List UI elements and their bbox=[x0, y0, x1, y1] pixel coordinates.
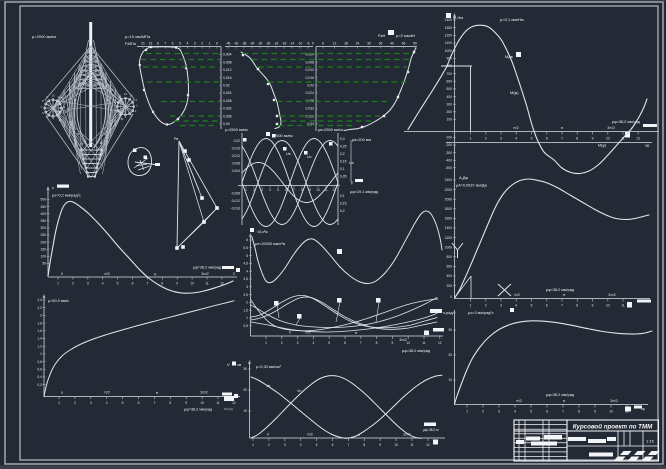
svg-text:7: 7 bbox=[347, 443, 349, 447]
svg-text:·10,с²м: ·10,с²м bbox=[256, 230, 268, 234]
svg-text:0,2: 0,2 bbox=[340, 209, 345, 213]
svg-text:1,5: 1,5 bbox=[243, 308, 248, 312]
svg-text:μφ=38,2 мм/рад: μφ=38,2 мм/рад bbox=[546, 393, 575, 397]
svg-text:0,1: 0,1 bbox=[340, 167, 345, 171]
svg-text:9: 9 bbox=[592, 137, 594, 141]
svg-text:11: 11 bbox=[130, 94, 133, 98]
svg-text:10: 10 bbox=[243, 409, 247, 413]
svg-text:1: 1 bbox=[58, 401, 60, 405]
svg-text:3π/2: 3π/2 bbox=[399, 338, 406, 342]
svg-text:μ=0,1 мм/Нм: μ=0,1 мм/Нм bbox=[500, 17, 524, 22]
svg-text:500: 500 bbox=[446, 87, 452, 91]
svg-text:5: 5 bbox=[277, 188, 279, 192]
svg-text:-0,012: -0,012 bbox=[231, 199, 241, 203]
svg-text:30: 30 bbox=[367, 42, 371, 46]
svg-text:0,032: 0,032 bbox=[223, 107, 232, 111]
svg-text:7: 7 bbox=[561, 304, 563, 308]
svg-text:1200: 1200 bbox=[445, 236, 453, 240]
svg-text:400: 400 bbox=[446, 95, 452, 99]
svg-text:0,004: 0,004 bbox=[223, 53, 232, 57]
svg-text:2: 2 bbox=[40, 314, 42, 318]
svg-text:0,012: 0,012 bbox=[306, 68, 315, 72]
svg-text:1,6: 1,6 bbox=[37, 329, 42, 333]
svg-text:0: 0 bbox=[450, 295, 452, 299]
svg-text:0,4: 0,4 bbox=[37, 375, 42, 379]
svg-text:2,4: 2,4 bbox=[37, 298, 42, 302]
svg-text:Uс: Uс bbox=[307, 155, 312, 159]
svg-text:0,008: 0,008 bbox=[306, 60, 315, 64]
svg-text:10: 10 bbox=[448, 378, 452, 382]
svg-text:1: 1 bbox=[40, 352, 42, 356]
svg-text:11: 11 bbox=[216, 401, 220, 405]
svg-text:0,5: 0,5 bbox=[243, 324, 248, 328]
svg-text:μ=2000 мм/м: μ=2000 мм/м bbox=[32, 34, 56, 39]
svg-text:10: 10 bbox=[606, 137, 610, 141]
svg-text:1: 1 bbox=[265, 341, 267, 345]
svg-text:19: 19 bbox=[149, 42, 153, 46]
svg-text:0,004: 0,004 bbox=[232, 169, 240, 173]
svg-text:0,008: 0,008 bbox=[232, 162, 240, 166]
svg-text:2200: 2200 bbox=[445, 188, 453, 192]
svg-text:0,2: 0,2 bbox=[340, 152, 345, 156]
svg-text:2: 2 bbox=[74, 401, 76, 405]
svg-text:100: 100 bbox=[40, 255, 46, 259]
svg-text:μφ=19,1 мм/рад: μφ=19,1 мм/рад bbox=[350, 190, 379, 194]
svg-text:6: 6 bbox=[132, 282, 134, 286]
svg-text:7: 7 bbox=[561, 137, 563, 141]
svg-text:6: 6 bbox=[246, 238, 248, 242]
svg-text:3π/2: 3π/2 bbox=[610, 399, 617, 403]
svg-text:μ=0,33 мм/см³: μ=0,33 мм/см³ bbox=[256, 365, 282, 369]
svg-text:-14: -14 bbox=[290, 42, 295, 46]
svg-text:2: 2 bbox=[72, 282, 74, 286]
svg-text:0: 0 bbox=[267, 433, 269, 437]
svg-text:11: 11 bbox=[205, 282, 209, 286]
svg-text:0: 0 bbox=[61, 391, 63, 395]
svg-text:11: 11 bbox=[422, 341, 426, 345]
svg-text:300: 300 bbox=[446, 102, 452, 106]
svg-text:3: 3 bbox=[500, 304, 502, 308]
svg-text:21: 21 bbox=[141, 42, 145, 46]
svg-text:50: 50 bbox=[42, 262, 46, 266]
svg-text:0,024: 0,024 bbox=[306, 91, 315, 95]
svg-text:-18: -18 bbox=[282, 42, 287, 46]
svg-text:3: 3 bbox=[498, 410, 500, 414]
svg-text:μ: μ bbox=[351, 181, 353, 185]
svg-text:10: 10 bbox=[606, 304, 610, 308]
svg-text:-42: -42 bbox=[234, 42, 239, 46]
svg-text:-0,008: -0,008 bbox=[231, 192, 241, 196]
svg-text:6: 6 bbox=[546, 410, 548, 414]
svg-text:м/рад: м/рад bbox=[224, 407, 233, 411]
svg-text:μφ=38,2 мм/рад: μφ=38,2 мм/рад bbox=[402, 349, 431, 353]
svg-text:4: 4 bbox=[515, 304, 517, 308]
svg-text:12: 12 bbox=[426, 443, 430, 447]
svg-text:8: 8 bbox=[363, 443, 365, 447]
svg-text:5: 5 bbox=[179, 42, 181, 46]
svg-text:0,15: 0,15 bbox=[340, 160, 347, 164]
svg-text:0,032: 0,032 bbox=[306, 107, 315, 111]
svg-text:6: 6 bbox=[546, 304, 548, 308]
svg-text:9: 9 bbox=[391, 341, 393, 345]
svg-text:1,4: 1,4 bbox=[37, 337, 42, 341]
svg-text:10: 10 bbox=[200, 401, 204, 405]
svg-text:8: 8 bbox=[578, 410, 580, 414]
svg-text:250: 250 bbox=[40, 233, 46, 237]
svg-text:12: 12 bbox=[333, 42, 337, 46]
svg-text:-200: -200 bbox=[445, 143, 452, 147]
svg-text:50: 50 bbox=[413, 42, 417, 46]
svg-text:9: 9 bbox=[594, 410, 596, 414]
svg-text:μв=2500 мм/м: μв=2500 мм/м bbox=[318, 128, 343, 132]
svg-text:2000: 2000 bbox=[445, 197, 453, 201]
svg-text:5: 5 bbox=[531, 304, 533, 308]
svg-text:5: 5 bbox=[122, 401, 124, 405]
svg-text:2: 2 bbox=[485, 304, 487, 308]
svg-text:12: 12 bbox=[134, 98, 138, 102]
svg-text:0,2: 0,2 bbox=[37, 383, 42, 387]
svg-text:1,2: 1,2 bbox=[37, 344, 42, 348]
svg-text:π/2: π/2 bbox=[514, 293, 519, 297]
svg-text:0,02: 0,02 bbox=[234, 139, 241, 143]
svg-text:1: 1 bbox=[470, 304, 472, 308]
svg-text:π/2: π/2 bbox=[307, 433, 312, 437]
svg-text:12: 12 bbox=[232, 401, 236, 405]
svg-text:5: 5 bbox=[530, 410, 532, 414]
svg-text:0,024: 0,024 bbox=[223, 91, 232, 95]
svg-text:200: 200 bbox=[40, 240, 46, 244]
svg-text:600: 600 bbox=[446, 80, 452, 84]
svg-text:-400: -400 bbox=[445, 158, 452, 162]
svg-text:1: 1 bbox=[466, 410, 468, 414]
svg-text:5: 5 bbox=[246, 254, 248, 258]
svg-text:3: 3 bbox=[500, 137, 502, 141]
svg-text:1200: 1200 bbox=[445, 34, 453, 38]
svg-text:3: 3 bbox=[246, 285, 248, 289]
svg-text:3: 3 bbox=[87, 282, 89, 286]
svg-text:350: 350 bbox=[40, 219, 46, 223]
svg-text:0,016: 0,016 bbox=[232, 147, 240, 151]
svg-text:450: 450 bbox=[40, 205, 46, 209]
svg-text:0,3: 0,3 bbox=[340, 137, 345, 141]
svg-text:0,02: 0,02 bbox=[307, 84, 314, 88]
svg-text:5: 5 bbox=[328, 341, 330, 345]
svg-text:5: 5 bbox=[531, 137, 533, 141]
svg-text:3π/2: 3π/2 bbox=[608, 293, 615, 297]
svg-text:-500: -500 bbox=[445, 166, 452, 170]
svg-text:4: 4 bbox=[106, 401, 108, 405]
svg-text:4: 4 bbox=[186, 42, 188, 46]
svg-text:2: 2 bbox=[268, 443, 270, 447]
svg-text:8: 8 bbox=[576, 137, 578, 141]
svg-text:400: 400 bbox=[40, 212, 46, 216]
svg-text:Р,МПа: Р,МПа bbox=[125, 42, 137, 46]
svg-text:8: 8 bbox=[161, 282, 163, 286]
svg-text:3π/2: 3π/2 bbox=[201, 272, 208, 276]
svg-text:6: 6 bbox=[172, 42, 174, 46]
svg-text:0,1: 0,1 bbox=[340, 194, 345, 198]
svg-text:7: 7 bbox=[562, 410, 564, 414]
svg-text:24: 24 bbox=[356, 42, 360, 46]
svg-text:0,04: 0,04 bbox=[223, 122, 230, 126]
svg-text:V: V bbox=[227, 362, 230, 367]
svg-text:4: 4 bbox=[515, 137, 517, 141]
svg-text:Uв: Uв bbox=[286, 152, 291, 156]
svg-text:500: 500 bbox=[40, 198, 46, 202]
svg-text:9: 9 bbox=[379, 443, 381, 447]
svg-text:μ=2 мм/кН: μ=2 мм/кН bbox=[396, 33, 415, 38]
svg-text:0,05: 0,05 bbox=[340, 175, 347, 179]
svg-text:4: 4 bbox=[514, 410, 516, 414]
svg-text:-6: -6 bbox=[307, 42, 310, 46]
svg-text:6: 6 bbox=[322, 42, 324, 46]
svg-text:2,2: 2,2 bbox=[37, 306, 42, 310]
svg-text:800: 800 bbox=[446, 255, 452, 259]
svg-text:-0,016: -0,016 bbox=[231, 207, 241, 211]
svg-text:μ=10 мм/МПа: μ=10 мм/МПа bbox=[125, 34, 151, 39]
svg-text:1: 1 bbox=[252, 443, 254, 447]
svg-text:2: 2 bbox=[246, 301, 248, 305]
svg-text:300: 300 bbox=[40, 226, 46, 230]
svg-text:7: 7 bbox=[153, 401, 155, 405]
svg-text:5: 5 bbox=[316, 443, 318, 447]
svg-text:3π/2: 3π/2 bbox=[607, 126, 614, 130]
svg-text:8: 8 bbox=[576, 304, 578, 308]
svg-text:А,Дж: А,Дж bbox=[459, 175, 468, 180]
svg-text:4: 4 bbox=[102, 282, 104, 286]
svg-text:2: 2 bbox=[482, 410, 484, 414]
svg-text:400: 400 bbox=[446, 274, 452, 278]
svg-text:1,8: 1,8 bbox=[37, 321, 42, 325]
svg-text:12: 12 bbox=[438, 341, 442, 345]
svg-text:0,012: 0,012 bbox=[223, 68, 232, 72]
svg-text:20: 20 bbox=[448, 353, 452, 357]
svg-text:5: 5 bbox=[117, 282, 119, 286]
svg-text:11: 11 bbox=[57, 95, 60, 99]
svg-text:0,028: 0,028 bbox=[223, 99, 232, 103]
svg-text:π/2: π/2 bbox=[104, 272, 109, 276]
svg-text:0,6: 0,6 bbox=[37, 368, 42, 372]
svg-text:-34: -34 bbox=[250, 42, 255, 46]
svg-text:6: 6 bbox=[546, 137, 548, 141]
svg-text:30: 30 bbox=[243, 367, 247, 371]
svg-text:1400: 1400 bbox=[445, 18, 453, 22]
svg-text:7: 7 bbox=[146, 282, 148, 286]
svg-text:0,02: 0,02 bbox=[223, 84, 230, 88]
svg-text:-26: -26 bbox=[266, 42, 271, 46]
svg-text:1: 1 bbox=[246, 316, 248, 320]
svg-text:18: 18 bbox=[344, 42, 348, 46]
svg-text:3: 3 bbox=[284, 443, 286, 447]
svg-text:Рв: Рв bbox=[174, 137, 178, 141]
svg-text:0,036: 0,036 bbox=[223, 114, 232, 118]
svg-text:30: 30 bbox=[448, 328, 452, 332]
svg-text:7: 7 bbox=[360, 341, 362, 345]
svg-text:0,016: 0,016 bbox=[306, 76, 315, 80]
svg-text:0: 0 bbox=[312, 42, 314, 46]
svg-text:10: 10 bbox=[190, 282, 194, 286]
svg-text:200: 200 bbox=[446, 110, 452, 114]
svg-text:0,016: 0,016 bbox=[223, 76, 232, 80]
svg-text:8: 8 bbox=[157, 42, 159, 46]
svg-text:М(φ): М(φ) bbox=[510, 90, 519, 95]
svg-text:700: 700 bbox=[446, 72, 452, 76]
svg-text:6: 6 bbox=[344, 341, 346, 345]
svg-text:μо=3 мм/рад²с: μо=3 мм/рад²с bbox=[468, 311, 494, 315]
svg-text:4: 4 bbox=[246, 269, 248, 273]
svg-text:μφ=38,2 мм/рад: μφ=38,2 мм/рад bbox=[546, 288, 575, 292]
svg-text:46: 46 bbox=[402, 42, 406, 46]
svg-text:10: 10 bbox=[51, 94, 55, 98]
svg-text:600: 600 bbox=[446, 265, 452, 269]
svg-text:μφ=38,2 мм/рад: μφ=38,2 мм/рад bbox=[193, 266, 222, 270]
svg-text:4: 4 bbox=[300, 443, 302, 447]
svg-text:4,5: 4,5 bbox=[243, 262, 248, 266]
svg-text:μе=0,2 мм/рад²с: μе=0,2 мм/рад²с bbox=[52, 194, 81, 198]
svg-text:10: 10 bbox=[124, 92, 128, 96]
svg-text:Vн: Vн bbox=[297, 389, 301, 393]
svg-text:2: 2 bbox=[281, 341, 283, 345]
svg-text:1400: 1400 bbox=[445, 226, 453, 230]
svg-text:10: 10 bbox=[609, 410, 613, 414]
svg-text:10: 10 bbox=[406, 341, 410, 345]
svg-text:π/2: π/2 bbox=[104, 391, 109, 395]
svg-text:0: 0 bbox=[61, 272, 63, 276]
svg-text:0,008: 0,008 bbox=[223, 60, 232, 64]
svg-text:μ=50,9 мм/с: μ=50,9 мм/с bbox=[48, 299, 69, 303]
svg-text:c: c bbox=[52, 185, 54, 190]
svg-text:1300: 1300 bbox=[445, 26, 453, 30]
svg-text:4: 4 bbox=[312, 341, 314, 345]
svg-text:7: 7 bbox=[164, 42, 166, 46]
svg-text:Uа: Uа bbox=[349, 161, 354, 165]
svg-text:200: 200 bbox=[446, 284, 452, 288]
svg-text:Курсовой проект по ТММ: Курсовой проект по ТММ bbox=[573, 424, 653, 431]
svg-text:6: 6 bbox=[332, 443, 334, 447]
svg-text:3: 3 bbox=[297, 341, 299, 345]
svg-text:36: 36 bbox=[379, 42, 383, 46]
svg-text:-30: -30 bbox=[258, 42, 263, 46]
svg-text:8: 8 bbox=[376, 341, 378, 345]
svg-text:1000: 1000 bbox=[445, 49, 453, 53]
svg-text:11: 11 bbox=[410, 443, 414, 447]
svg-text:40: 40 bbox=[390, 42, 394, 46]
svg-text:1000: 1000 bbox=[445, 245, 453, 249]
svg-text:2: 2 bbox=[201, 42, 203, 46]
svg-text:10: 10 bbox=[394, 443, 398, 447]
svg-text:-10: -10 bbox=[298, 42, 303, 46]
svg-text:12: 12 bbox=[636, 137, 640, 141]
svg-text:3,5: 3,5 bbox=[243, 277, 248, 281]
svg-text:1: 1 bbox=[57, 282, 59, 286]
svg-text:μφ=38,2 м: μφ=38,2 м bbox=[423, 428, 439, 432]
svg-text:π/2: π/2 bbox=[513, 126, 518, 130]
svg-text:11: 11 bbox=[621, 304, 625, 308]
svg-text:μφ=38,2 мм/рад: μφ=38,2 мм/рад bbox=[184, 408, 213, 412]
svg-text:150: 150 bbox=[40, 247, 46, 251]
svg-text:8: 8 bbox=[169, 401, 171, 405]
svg-text:1:15: 1:15 bbox=[646, 440, 653, 444]
svg-text:μе=20000 мм/с²м: μе=20000 мм/с²м bbox=[255, 242, 286, 246]
svg-text:о,рад/с: о,рад/с bbox=[443, 311, 456, 315]
svg-text:3: 3 bbox=[90, 401, 92, 405]
svg-text:μв=200 мм: μв=200 мм bbox=[352, 138, 371, 142]
svg-text:-100: -100 bbox=[445, 136, 452, 140]
svg-text:2: 2 bbox=[485, 137, 487, 141]
svg-text:0,25: 0,25 bbox=[340, 145, 347, 149]
svg-text:Vв: Vв bbox=[266, 384, 270, 388]
svg-text:М(φ): М(φ) bbox=[598, 144, 607, 148]
svg-text:12: 12 bbox=[61, 99, 65, 103]
svg-text:μА=0,0637 мм/Дж: μА=0,0637 мм/Дж bbox=[456, 184, 487, 188]
svg-text:1: 1 bbox=[470, 137, 472, 141]
svg-text:0: 0 bbox=[289, 331, 291, 335]
svg-text:μ=2500 мм/м: μ=2500 мм/м bbox=[225, 128, 248, 132]
svg-text:3: 3 bbox=[194, 42, 196, 46]
svg-text:10: 10 bbox=[316, 188, 320, 192]
svg-text:-38: -38 bbox=[242, 42, 247, 46]
svg-text:1800: 1800 bbox=[445, 207, 453, 211]
svg-text:0,8: 0,8 bbox=[37, 360, 42, 364]
svg-text:9: 9 bbox=[176, 282, 178, 286]
svg-text:0: 0 bbox=[216, 42, 218, 46]
svg-text:Р,кН: Р,кН bbox=[378, 34, 386, 38]
svg-text:9: 9 bbox=[592, 304, 594, 308]
svg-text:5,5: 5,5 bbox=[243, 246, 248, 250]
svg-text:9: 9 bbox=[185, 401, 187, 405]
svg-text:1100: 1100 bbox=[445, 41, 452, 45]
svg-text:20: 20 bbox=[243, 388, 247, 392]
svg-text:π/2: π/2 bbox=[516, 399, 521, 403]
svg-text:2400: 2400 bbox=[445, 178, 453, 182]
svg-text:-300: -300 bbox=[445, 151, 452, 155]
svg-text:1600: 1600 bbox=[445, 217, 453, 221]
svg-text:4: 4 bbox=[269, 188, 271, 192]
svg-text:6: 6 bbox=[138, 401, 140, 405]
svg-text:100: 100 bbox=[446, 118, 452, 122]
svg-text:1: 1 bbox=[209, 42, 211, 46]
svg-text:-22: -22 bbox=[274, 42, 279, 46]
svg-text:-46: -46 bbox=[226, 42, 231, 46]
svg-text:см: см bbox=[237, 363, 242, 367]
svg-text:0,15: 0,15 bbox=[340, 202, 347, 206]
svg-text:3π/2: 3π/2 bbox=[200, 391, 207, 395]
svg-text:2,5: 2,5 bbox=[243, 293, 248, 297]
svg-text:0,012: 0,012 bbox=[232, 154, 240, 158]
